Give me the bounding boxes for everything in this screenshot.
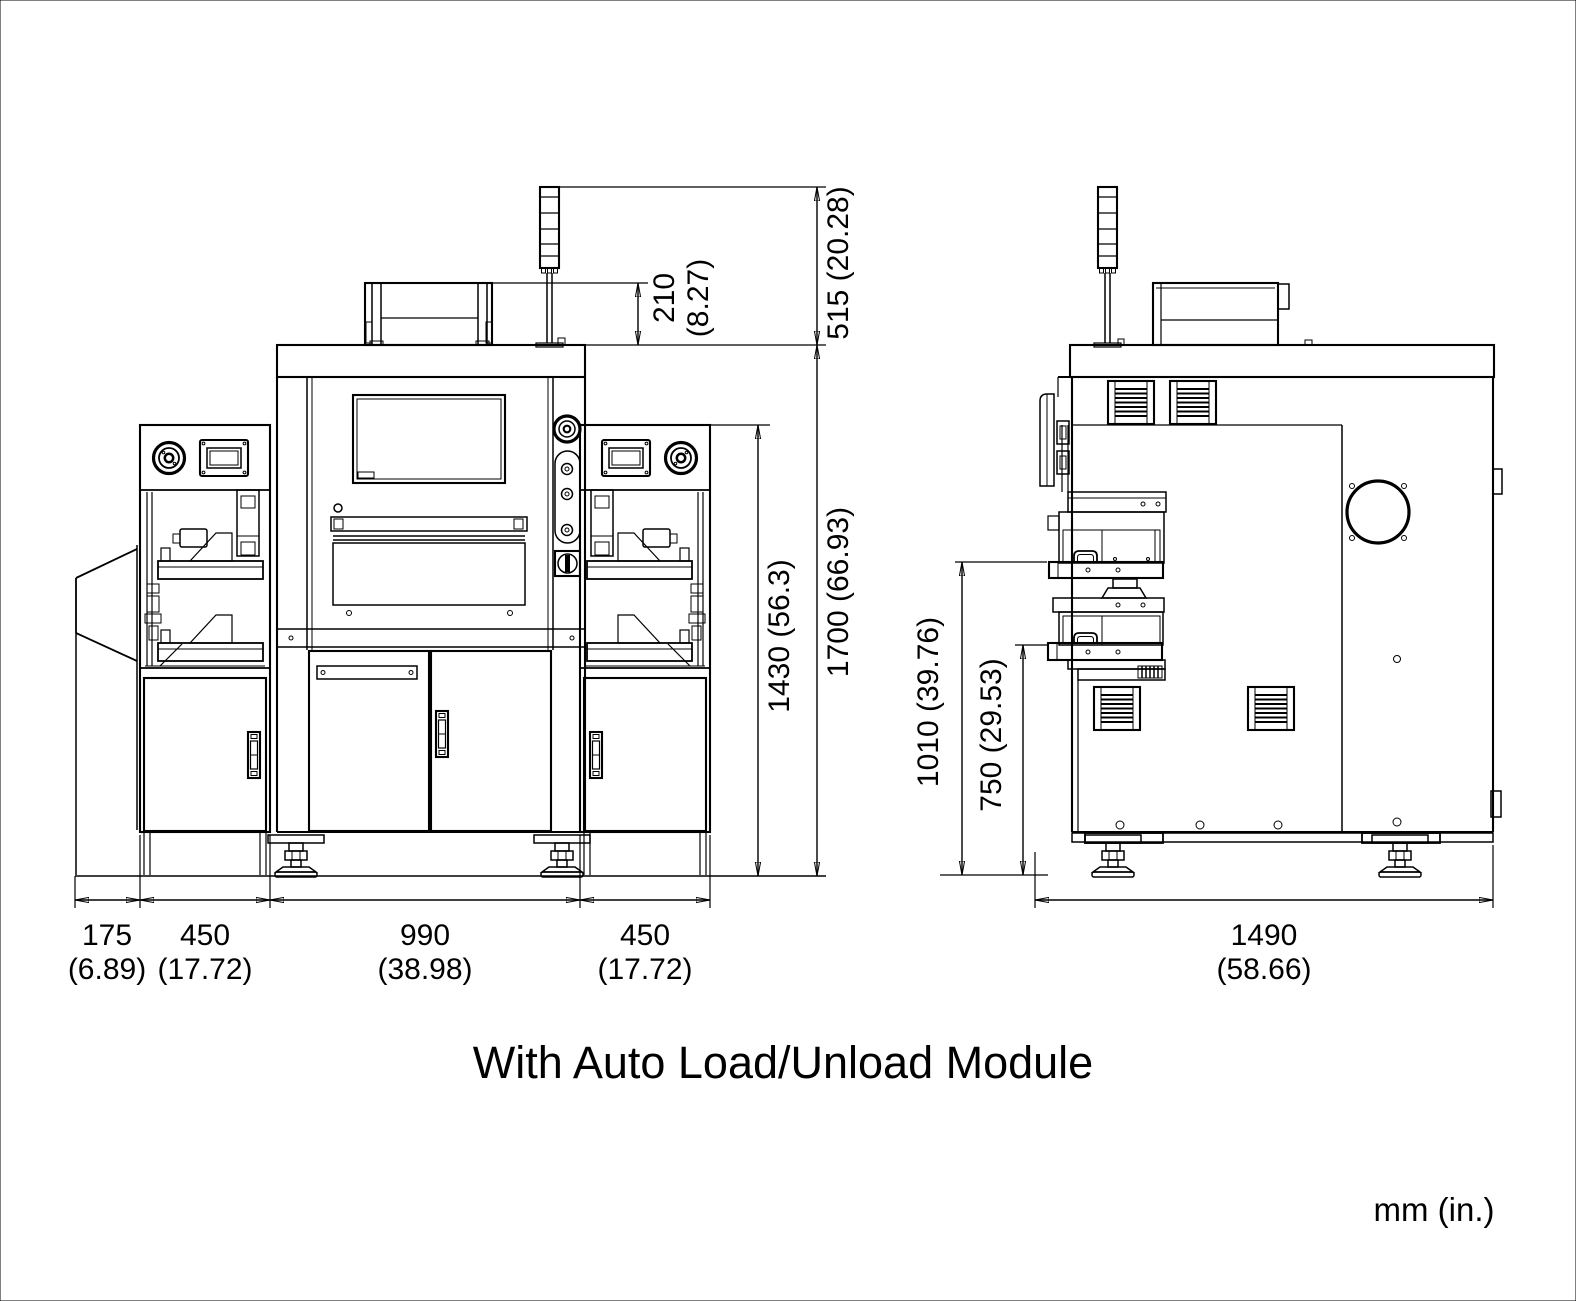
front-dimensions: 210 (8.27) 515 (20.28) 1430 (56.3) 1700 … bbox=[68, 186, 855, 986]
side-dimensions: 1010 (39.76) 750 (29.53) 1490 (58.66) bbox=[912, 562, 1493, 986]
dim-210-in: (8.27) bbox=[682, 259, 715, 337]
tray-handle bbox=[1074, 551, 1097, 562]
dim-450-right-mm: 450 bbox=[620, 919, 670, 952]
fan-port bbox=[1347, 481, 1409, 543]
keyhole bbox=[334, 504, 342, 512]
front-main-cabinet bbox=[277, 345, 585, 832]
dim-450-left-mm: 450 bbox=[180, 919, 230, 952]
dimension-drawing-page: 210 (8.27) 515 (20.28) 1430 (56.3) 1700 … bbox=[0, 0, 1576, 1301]
dim-175-mm: 175 bbox=[82, 919, 132, 952]
dim-1430-label: 1430 (56.3) bbox=[763, 559, 796, 712]
vent-grille bbox=[1248, 687, 1294, 730]
dim-515-label: 515 (20.28) bbox=[822, 186, 855, 339]
dim-450-left-in: (17.72) bbox=[157, 953, 252, 986]
dim-175-in: (6.89) bbox=[68, 953, 146, 986]
dim-210-mm: 210 bbox=[648, 273, 681, 323]
vent-grille bbox=[1170, 381, 1216, 424]
leveling-foot bbox=[268, 835, 324, 877]
vent-grille bbox=[1094, 687, 1140, 730]
cabinet-door-left bbox=[309, 651, 429, 831]
dim-750-label: 750 (29.53) bbox=[975, 658, 1008, 811]
dim-990-in: (38.98) bbox=[377, 953, 472, 986]
front-window bbox=[353, 395, 505, 483]
technical-drawing: 210 (8.27) 515 (20.28) 1430 (56.3) 1700 … bbox=[0, 0, 1576, 1301]
signal-tower-icon bbox=[536, 187, 563, 347]
front-control-column bbox=[554, 416, 580, 576]
door-handle bbox=[436, 711, 448, 757]
dim-1490-mm: 1490 bbox=[1231, 919, 1298, 952]
front-slot-panel bbox=[331, 517, 527, 616]
left-chute bbox=[76, 545, 137, 875]
side-top-box bbox=[1153, 283, 1312, 345]
dim-1700-label: 1700 (66.93) bbox=[822, 507, 855, 677]
right-unload-module bbox=[580, 425, 710, 875]
units-label: mm (in.) bbox=[1374, 1191, 1495, 1228]
front-top-box bbox=[365, 283, 492, 345]
dim-990-mm: 990 bbox=[400, 919, 450, 952]
side-base bbox=[1072, 833, 1493, 877]
leveling-foot bbox=[534, 835, 590, 877]
emergency-stop-button bbox=[554, 416, 580, 442]
side-load-module bbox=[1040, 394, 1166, 832]
dim-450-right-in: (17.72) bbox=[597, 953, 692, 986]
vent-grille bbox=[1108, 381, 1154, 424]
signal-tower-icon bbox=[1094, 187, 1121, 347]
side-view bbox=[1040, 187, 1502, 877]
dim-1010-label: 1010 (39.76) bbox=[912, 617, 945, 787]
left-load-module bbox=[140, 425, 270, 875]
drawing-caption: With Auto Load/Unload Module bbox=[473, 1037, 1093, 1088]
dim-1490-in: (58.66) bbox=[1216, 953, 1311, 986]
